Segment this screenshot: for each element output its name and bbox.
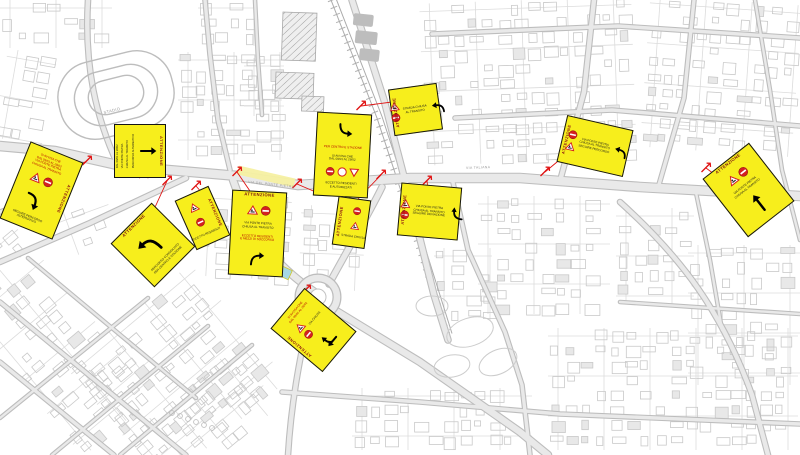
roadwork-sign-s10: ATTENZIONEVIA PONTE PIETRACHIUSA AL TRAN… [556,115,633,177]
direction-arrow-icon [447,204,467,224]
sign-symbols-row [187,201,200,214]
sign-small-print: VIA PONTE PIETRACHIUSA AL TRANSITOSEGUIR… [412,205,445,219]
traffic-signage-plan: STADIOVIA DEL PONTE PIETRAVIA TALIANA AT… [0,0,800,455]
sign-mixed-row: VIA PONTE PIETRACHIUSA AL TRANSITOSEGUIR… [565,129,633,164]
roadwork-sign-s7: ATTENZIONESTRADA CHIUSA [332,196,371,249]
roadwork-sign-s9: ATTENZIONESTRADA CHIUSAAL TRANSITO [388,83,443,136]
sign-small-print: VIA PONTE PIETRACHIUSA AL TRANSITO [242,221,274,230]
sign-small-print: PER CENTRO E STAZIONE [324,145,362,151]
no-entry-icon [194,216,207,229]
sign-symbols-row [352,206,362,216]
warning-triangle-icon [350,221,360,231]
sign-small-print: ECCETTO RESIDENTIE AUTORIZZATI [325,181,356,190]
sign-symbols-row [194,216,207,229]
sign-small-print: VIA PONTE PIETRACHIUSA AL TRANSITOSEGUIR… [578,137,611,155]
direction-arrow-icon [742,187,776,221]
sign-body: VIA PONTE PIETRACHIUSA AL TRANSITOSEGUIR… [405,184,461,239]
direction-arrow-icon [333,120,354,141]
no-entry-icon [324,166,335,177]
no-entry-icon [259,205,271,217]
yield-icon [348,167,359,178]
roadwork-sign-s12: ATTENZIONESI AVVISA CHEDAL 09/01 AL 28/0… [270,288,356,372]
warning-triangle-icon [246,205,258,217]
sign-small-print: SI AVVISA CHEDAL 09/01 AL 28/02 [329,154,356,163]
sign-small-print: ECCETTO RESIDENTI [191,226,221,242]
roadwork-sign-s11: ATTENZIONEVIA PONTE PIETRACHIUSA AL TRAN… [702,143,794,238]
no-entry-icon [41,175,55,189]
direction-arrow-icon [428,96,448,116]
roadwork-sign-s1: ATTENZIONESI AVVISA CHEDAL 09/01 AL 28/0… [0,141,83,239]
sign-vertical-text-row: DAL 09/01 AL 28/02VIA PONTE PIETRACHIUSA… [116,134,158,168]
roadwork-sign-s2: ATTENZIONEDAL 09/01 AL 28/02VIA PONTE PI… [114,124,166,178]
roadwork-signs-layer: ATTENZIONESI AVVISA CHEDAL 09/01 AL 28/0… [0,0,800,455]
restriction-circle-icon [336,167,347,178]
sign-small-print: STRADA CHIUSAAL TRANSITO [403,104,428,114]
roadwork-sign-s6: PER CENTRO E STAZIONESI AVVISA CHEDAL 09… [313,112,372,199]
direction-arrow-icon [20,185,49,214]
sign-body: VIA PONTE PIETRACHIUSA AL TRANSITOSEGUIR… [564,118,632,176]
direction-arrow-icon [246,247,267,268]
warning-triangle-icon [187,201,200,214]
sign-body: PER CENTRO E STAZIONESI AVVISA CHEDAL 09… [314,113,371,198]
sign-body: STRADA CHIUSAAL TRANSITO [396,84,442,134]
sign-symbols-row [246,205,271,217]
sign-symbols-row [350,221,360,231]
sign-body: VIA PONTE PIETRACHIUSA AL TRANSITO [708,149,794,236]
sign-small-print: VIA CHIUSA [308,311,322,326]
sign-body: VIA PONTE PIETRACHIUSA AL TRANSITOECCETT… [229,197,286,277]
sign-symbols-row [324,166,358,178]
sign-body: DAL 09/01 AL 28/02VIA PONTE PIETRACHIUSA… [115,125,158,177]
direction-arrow-icon [610,141,632,163]
sign-body: SI AVVISA CHEDAL 09/01 AL 28/02VIA CHIUS… [276,289,355,365]
sign-title: ATTENZIONE [158,126,165,176]
sign-small-print: STRADA CHIUSA [341,234,365,241]
roadwork-sign-s8: ATTENZIONEVIA PONTE PIETRACHIUSA AL TRAN… [397,182,462,240]
no-entry-icon [352,206,362,216]
direction-arrow-icon [138,141,158,161]
sign-small-print: ECCETTO RESIDENTIE MEZZI DI SOCCORSO [240,234,274,243]
roadwork-sign-s5: ATTENZIONEVIA PONTE PIETRACHIUSA AL TRAN… [228,190,287,278]
sign-mixed-row: VIA PONTE PIETRACHIUSA AL TRANSITOSEGUIR… [399,198,466,225]
